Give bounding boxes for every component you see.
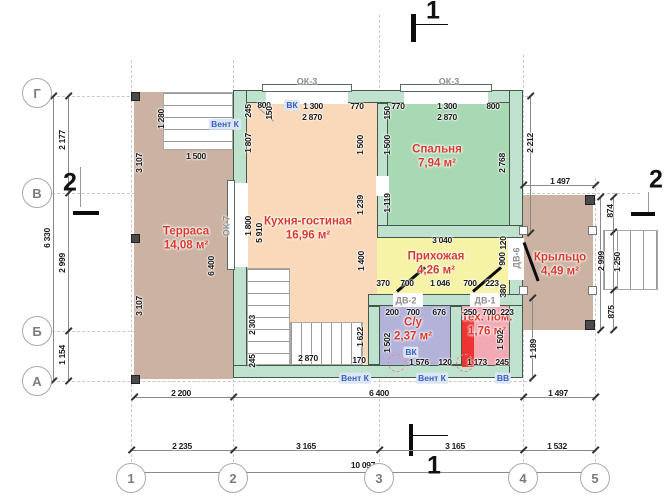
room-area-label: 7,94 м² [418, 158, 456, 170]
dim-label: 770 [350, 102, 363, 111]
opening-label: ДВ-1 [475, 297, 496, 306]
axis-row-bubble: В [22, 178, 52, 208]
room-name-label: Терраса [163, 226, 209, 238]
dim-label: 120 [499, 236, 508, 249]
vent-label: Вент К [416, 373, 448, 384]
dim-label: 900 [498, 252, 507, 265]
room-area-label: 14,08 м² [164, 240, 208, 252]
dim-label: 1 576 [409, 358, 429, 367]
axis-col-bubble: 3 [364, 463, 394, 493]
dimension-line [530, 96, 531, 233]
dim-label: 3 165 [296, 442, 316, 451]
room-name-label: С/у [404, 317, 422, 329]
room-area-label: 2,37 м² [394, 331, 432, 343]
column-post [131, 375, 140, 384]
dim-label: 223 [500, 308, 513, 317]
dim-label: 245 [495, 358, 508, 367]
dim-label: 1 497 [550, 177, 570, 186]
dim-label: 250 [463, 308, 476, 317]
axis-col-bubble: 5 [580, 463, 610, 493]
wall [368, 306, 380, 365]
dim-label: 3 165 [445, 442, 465, 451]
axis-row-bubble: Б [22, 316, 52, 346]
grid-line-vertical [595, 178, 596, 462]
dim-label: 1 622 [356, 327, 365, 347]
dim-label: 1 250 [613, 252, 622, 272]
opening-label: ОК-3 [297, 78, 318, 87]
vent-label: ВВ [495, 373, 511, 384]
dim-label: 1 300 [437, 102, 457, 111]
dim-label: 1 119 [383, 193, 392, 212]
dim-label: 2 870 [298, 354, 318, 363]
section-marker-bar [409, 424, 413, 456]
room-name-label: Спальня [412, 144, 462, 156]
dim-label: 676 [432, 308, 445, 317]
section-marker-line [648, 192, 649, 214]
dimension-line [53, 96, 54, 381]
dim-label: 3 107 [135, 153, 144, 173]
room-name-label: Прихожая [408, 251, 465, 263]
dim-label: 1 280 [157, 109, 166, 129]
dim-label: 700 [463, 279, 476, 288]
dim-label: 1 300 [303, 102, 323, 111]
dimension-line [68, 96, 69, 381]
opening-label: ОК-7 [223, 216, 232, 237]
vent-label: ВК [284, 100, 299, 111]
dim-label: 1 502 [496, 330, 505, 350]
dim-label: 1 154 [58, 345, 67, 365]
axis-col-bubble: 1 [116, 463, 146, 493]
dim-label: 370 [376, 279, 389, 288]
floor-plan-canvas: Терраса14,08 м²Кухня-гостиная16,96 м²Спа… [0, 0, 664, 502]
dim-label: 2 212 [526, 133, 535, 153]
section-marker-number: 1 [427, 454, 441, 479]
dim-label: 700 [482, 308, 495, 317]
dim-label: 1 532 [547, 442, 567, 451]
section-marker-line [80, 167, 81, 207]
section-marker-number: 1 [426, 0, 440, 24]
dim-label: 1 502 [383, 333, 392, 353]
dim-label: 1 807 [244, 133, 253, 153]
dim-label: 2 177 [58, 130, 67, 150]
grid-line-horizontal [52, 381, 532, 382]
dim-label: 245 [248, 354, 257, 367]
dim-label: 770 [391, 102, 404, 111]
dim-label: 700 [406, 308, 419, 317]
axis-col-bubble: 2 [218, 463, 248, 493]
axis-col-bubble: 4 [508, 463, 538, 493]
dim-label: 1 400 [357, 251, 366, 271]
dim-label: 2 870 [302, 113, 322, 122]
opening-label: ОК-3 [439, 78, 460, 87]
axis-row-bubble: Г [22, 78, 52, 108]
dim-label: 380 [499, 284, 508, 297]
dim-label: 245 [244, 104, 253, 117]
dim-label: 2 999 [597, 251, 606, 271]
dim-label: 200 [385, 308, 398, 317]
grid-line-vertical [131, 60, 132, 462]
dim-label: 2 303 [248, 315, 257, 335]
vent-label: ВК [403, 347, 418, 358]
dim-label: 120 [438, 358, 451, 367]
section-marker-bar [73, 211, 99, 215]
dim-label: 6 400 [207, 256, 216, 276]
porch-post [519, 286, 528, 295]
dim-label: 6 400 [369, 389, 389, 398]
room-area-label: 4,26 м² [417, 265, 455, 277]
dim-label: 6 330 [43, 228, 52, 248]
dim-label: 2 870 [437, 113, 457, 122]
room-area-label: 16,96 м² [286, 230, 330, 242]
dim-label: 2 999 [58, 253, 67, 273]
section-marker-number: 2 [63, 171, 77, 196]
dim-label: 1 500 [186, 152, 206, 161]
column-post [585, 320, 595, 330]
dim-label: 150 [383, 106, 392, 119]
wall [233, 365, 523, 378]
vent-label: Вент К [209, 119, 241, 130]
section-marker-bar [411, 14, 416, 42]
dim-label: 800 [486, 102, 499, 111]
dim-label: 170 [352, 356, 365, 365]
opening-label: ДВ-2 [396, 297, 417, 306]
axis-row-bubble: А [22, 366, 52, 396]
column-post [585, 195, 595, 205]
vent-label: Вент К [339, 373, 371, 384]
dim-label: 1 500 [383, 135, 392, 155]
room-name-label: Крыльцо [534, 252, 586, 264]
dim-label: 3 107 [135, 296, 144, 316]
section-marker-line [413, 435, 448, 436]
dim-label: 1 800 [244, 216, 253, 236]
dim-label: 1 173 [467, 358, 487, 367]
dim-label: 1 497 [548, 389, 568, 398]
dim-label: 2 235 [172, 442, 192, 451]
section-marker-number: 2 [649, 168, 663, 193]
dim-label: 5 910 [255, 223, 264, 243]
dim-label: 3 040 [432, 236, 452, 245]
dim-label: 2 768 [498, 153, 507, 173]
dim-label: 875 [607, 305, 616, 318]
room-name-label: Кухня-гостиная [264, 216, 352, 228]
column-post [131, 92, 140, 101]
porch-post [588, 286, 597, 295]
dim-label: 2 200 [171, 389, 191, 398]
dimension-line [131, 450, 595, 451]
dim-label: 1 239 [356, 195, 365, 215]
dim-label: 700 [400, 279, 413, 288]
dim-label: 223 [485, 279, 498, 288]
column-post [131, 234, 140, 243]
opening-label: ДВ-6 [513, 248, 522, 269]
dim-label: 874 [606, 204, 615, 217]
dim-label: 1 046 [430, 279, 450, 288]
section-marker-bar [631, 212, 655, 216]
porch-post [588, 226, 597, 235]
dim-label: 1 500 [356, 135, 365, 155]
room-area-label: 4,49 м² [541, 266, 579, 278]
dim-label: 150 [265, 106, 274, 119]
dim-label: 1 189 [529, 339, 538, 359]
dimension-line [134, 397, 595, 398]
